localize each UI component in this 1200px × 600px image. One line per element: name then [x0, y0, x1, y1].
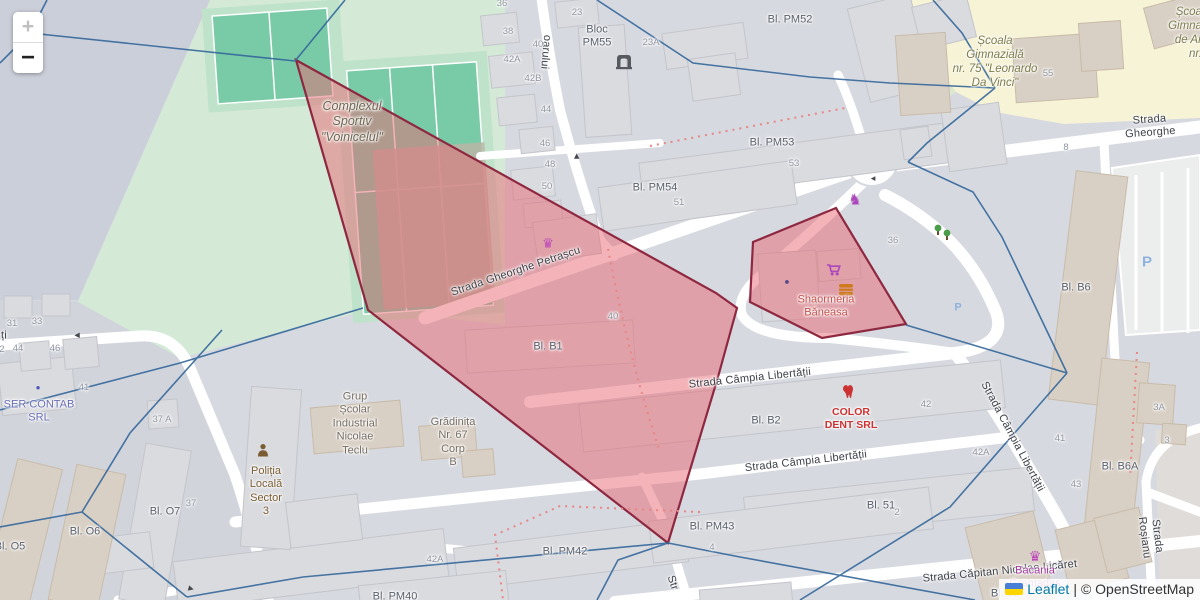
zoom-out-button[interactable]: −	[13, 43, 43, 73]
zoom-control: + −	[13, 12, 43, 73]
ukraine-flag-icon	[1005, 583, 1023, 595]
attribution-bar: Leaflet | © OpenStreetMap	[999, 579, 1200, 600]
fast-food-icon	[839, 284, 853, 295]
zoom-in-button[interactable]: +	[13, 12, 43, 43]
openstreetmap-link[interactable]: © OpenStreetMap	[1081, 581, 1194, 597]
leaflet-link[interactable]: Leaflet	[1027, 581, 1069, 597]
attribution-separator: |	[1073, 581, 1077, 597]
map-canvas[interactable]: Strada Gheorghe Petrașcu Strada Câmpia L…	[0, 0, 1200, 600]
map-base-layer	[0, 0, 1200, 600]
